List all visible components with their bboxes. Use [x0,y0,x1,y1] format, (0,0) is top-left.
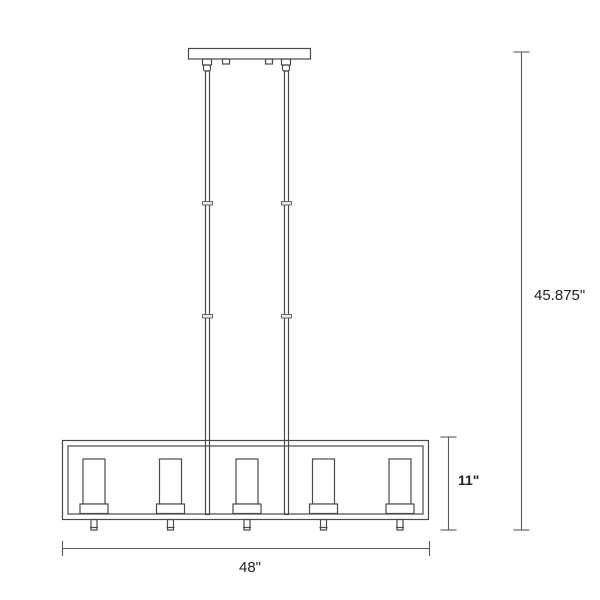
downrod-left [206,71,210,515]
shade-5-stem [397,520,403,531]
shade-3-glass [236,459,258,504]
shade-2-glass [160,459,182,504]
dimension-overall-height: 45.875" [514,52,586,530]
fixture-height-dim-label: 11" [458,472,479,488]
fixture-width-dim-label: 48" [239,559,261,576]
shade-1-stem [91,520,97,531]
canopy-mount-tab-left [223,59,230,64]
shade-1-cup [80,504,108,514]
shade-2-cup [157,504,185,514]
dimension-fixture-height: 11" [441,437,480,530]
chandelier-line-drawing: 45.875" 11" 48" [0,0,600,600]
shade-3-stem [244,520,250,531]
shade-3-cup [233,504,261,514]
rod-coupling-left-lower [203,315,213,319]
dimension-diagram: 45.875" 11" 48" [0,0,600,600]
downrod-collar-left [203,59,212,71]
rod-coupling-left-upper [203,202,213,206]
downrod-right [285,71,289,515]
overall-height-dim-label: 45.875" [534,287,585,304]
downrod-collar-right [282,59,291,71]
shade-4-stem [321,520,327,531]
dimension-fixture-width: 48" [63,541,430,576]
shade-1-glass [83,459,105,504]
shade-5-cup [386,504,414,514]
rod-coupling-right-lower [282,315,292,319]
shade-4-cup [310,504,338,514]
shade-5-glass [389,459,411,504]
ceiling-canopy [189,49,311,60]
shade-2-stem [168,520,174,531]
canopy-mount-tab-right [266,59,273,64]
chandelier-fixture [63,49,429,531]
shade-4-glass [313,459,335,504]
rod-coupling-right-upper [282,202,292,206]
